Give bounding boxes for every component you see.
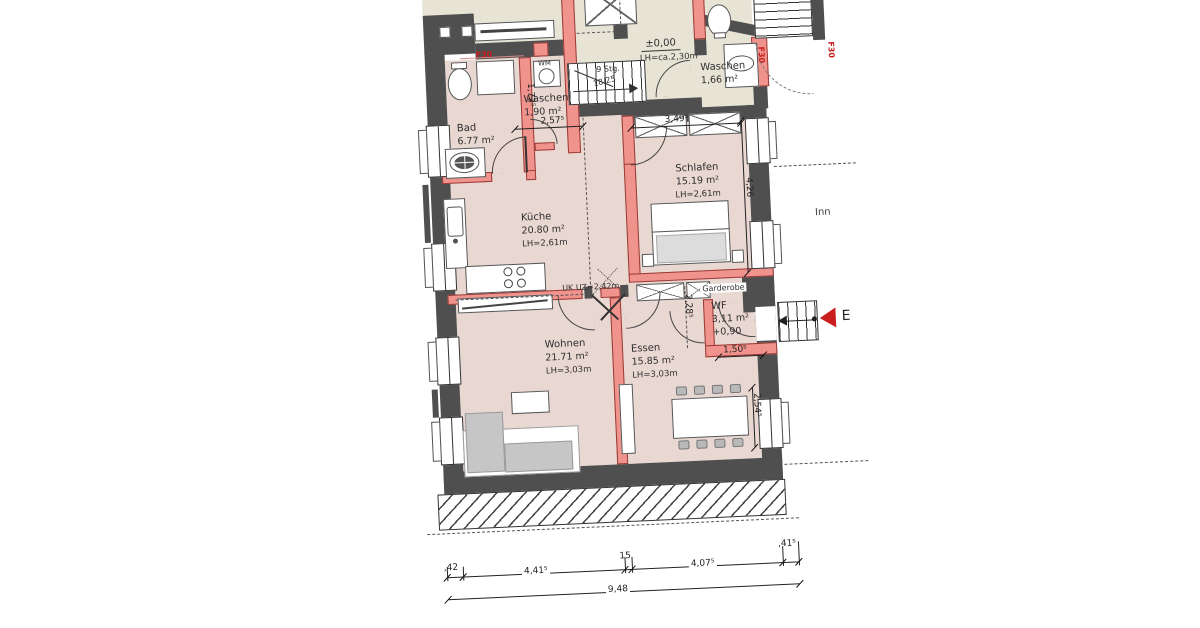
room-area: 20.80 m² <box>521 224 565 237</box>
room-clearance: LH=3,03m <box>546 365 592 377</box>
entrance-marker-icon <box>819 307 836 328</box>
wall-pillar-window <box>461 26 472 37</box>
room-name: Waschen <box>700 60 745 73</box>
window-schlafen-1 <box>745 117 771 164</box>
room-name: WF <box>711 300 727 312</box>
fire-rating-label: F30 <box>826 41 836 58</box>
dim-essen-depth: 2,28⁵ <box>683 294 694 318</box>
room-label-wf: WF 3,11 m² +0,90 <box>711 298 750 339</box>
entrance-label: E <box>841 308 851 324</box>
room-level: +0,90 <box>712 326 742 338</box>
dim-schlafen-depth: 4,26 <box>743 177 754 197</box>
upper-bed-partial <box>583 0 637 26</box>
room-name: Wohnen <box>545 338 586 351</box>
room-area: 21.71 m² <box>545 351 589 364</box>
dim-essen-window: 2,54⁵ <box>751 393 762 417</box>
window-sill <box>431 421 442 461</box>
room-area: 6.77 m² <box>457 135 495 148</box>
context-label: Inn <box>815 206 831 220</box>
entrance-door-opening <box>755 306 777 341</box>
dim-bottom-seg-5: ,41⁵ <box>778 538 796 549</box>
fire-rating-label: F30 <box>475 50 492 60</box>
chair-icon <box>694 385 705 394</box>
floor-plan-page: { "colors": { "existing_wall": "#4f4f4f"… <box>0 0 1200 600</box>
room-area: 15.19 m² <box>676 175 720 188</box>
room-clearance: LH=3,03m <box>632 369 678 381</box>
dim-bottom-total: 9,48 <box>606 584 630 595</box>
sink-icon <box>446 206 463 237</box>
room-label-wohnen: Wohnen 21.71 m² LH=3,03m <box>544 337 591 378</box>
window-sill <box>418 130 429 174</box>
washbasin-base <box>451 62 467 70</box>
neighbor-wall-strip <box>422 185 431 243</box>
chair-icon <box>676 386 687 395</box>
level-value: ±0,00 <box>641 37 680 52</box>
stairs-steps-label: 9 Stg. <box>596 64 620 74</box>
room-label-waschen-eg: Waschen 1,66 m² <box>700 59 746 87</box>
room-label-bad: Bad 6.77 m² <box>457 121 495 149</box>
fire-rating-label: F30 <box>756 46 766 63</box>
washing-machine-label: WM <box>538 59 551 68</box>
newwall-upper-divider-red <box>691 0 706 40</box>
chair-icon <box>696 439 707 448</box>
dim-wf-width: 1,50⁵ <box>723 344 747 355</box>
room-label-kueche: Küche 20.80 m² LH=2,61m <box>521 210 568 251</box>
nightstand-icon <box>642 254 655 268</box>
wall-pillar-window <box>439 27 450 38</box>
window-schlafen-2 <box>749 220 775 269</box>
bed-blanket <box>656 232 727 263</box>
washbasin-base <box>714 32 726 39</box>
newwall-top-stub <box>533 42 549 57</box>
dim-schlafen-width: 3,49⁵ <box>664 114 688 125</box>
nightstand-icon <box>732 250 745 264</box>
stairs-exterior-top <box>753 0 813 39</box>
room-area: 1,66 m² <box>701 74 739 87</box>
room-name: Bad <box>457 123 477 135</box>
room-area: 3,11 m² <box>712 312 750 325</box>
room-name: Essen <box>631 342 661 354</box>
hall-level-label: ±0,00 <box>641 35 702 51</box>
window-wohnen-2 <box>439 416 465 465</box>
window-wohnen-1 <box>435 337 461 386</box>
room-name: Küche <box>521 211 552 223</box>
window-sill <box>768 121 778 159</box>
chair-icon <box>730 384 741 393</box>
dim-bottom-seg-1: ,42 <box>444 563 459 574</box>
dining-table-icon <box>671 396 749 439</box>
stairs-arrow-icon <box>629 83 638 93</box>
room-clearance: LH=2,61m <box>675 189 721 201</box>
chair-icon <box>732 438 743 447</box>
dim-bottom-seg-4: 4,07⁵ <box>689 558 717 569</box>
column-marker <box>613 25 628 40</box>
room-label-essen: Essen 15.85 m² LH=3,03m <box>631 341 678 382</box>
neighbor-wall-strip <box>432 390 439 418</box>
dim-hall-top: 2,57⁵ <box>540 116 564 127</box>
dim-bottom-seg-2: 4,41⁵ <box>522 566 550 577</box>
floor-plan: 9 Stg. 18/25 WM <box>401 0 891 628</box>
sofa-icon <box>465 412 506 474</box>
entrance-arrow-icon <box>778 316 787 326</box>
coffee-table-icon <box>511 390 550 414</box>
window-sill <box>427 342 438 382</box>
boundary-dashed-right-top <box>774 162 856 167</box>
dim-waschen-height: 1,72⁵ <box>525 83 536 107</box>
boundary-dashed-right-bottom <box>784 460 868 465</box>
window-sill <box>423 248 434 288</box>
sofa-icon <box>504 440 573 472</box>
room-name: Schlafen <box>675 162 719 175</box>
chair-icon <box>714 439 725 448</box>
dim-bottom-seg-3: 15 <box>619 551 631 562</box>
chair-icon <box>712 385 723 394</box>
room-clearance: LH=2,61m <box>522 238 568 250</box>
window-sill <box>773 224 783 264</box>
window-sill <box>781 402 791 444</box>
shower-icon <box>476 60 516 96</box>
chair-icon <box>678 440 689 449</box>
room-area: 15.85 m² <box>631 355 675 368</box>
room-label-schlafen: Schlafen 15.19 m² LH=2,61m <box>661 160 735 203</box>
